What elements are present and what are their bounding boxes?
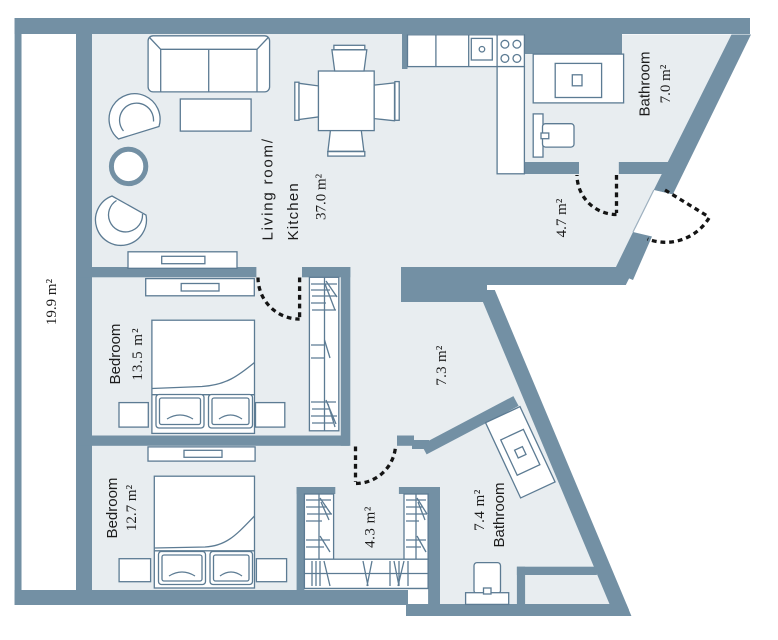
svg-text:7.4 m²: 7.4 m² — [472, 489, 488, 531]
svg-text:19.9 m²: 19.9 m² — [44, 278, 60, 325]
svg-text:37.0 m²: 37.0 m² — [314, 173, 330, 220]
svg-text:7.0 m²: 7.0 m² — [658, 64, 674, 103]
svg-text:4.7 m²: 4.7 m² — [554, 198, 570, 237]
svg-text:13.5 m²: 13.5 m² — [130, 327, 146, 380]
svg-text:Bedroom: Bedroom — [104, 478, 121, 539]
svg-text:7.3 m²: 7.3 m² — [434, 345, 450, 386]
svg-text:Kitchen: Kitchen — [285, 182, 302, 240]
svg-text:Bathroom: Bathroom — [637, 51, 654, 116]
svg-text:4.3 m²: 4.3 m² — [363, 506, 379, 548]
svg-text:Bedroom: Bedroom — [107, 324, 124, 385]
svg-text:Bathroom: Bathroom — [491, 482, 508, 547]
svg-text:12.7 m²: 12.7 m² — [124, 484, 140, 531]
svg-text:Living room/: Living room/ — [260, 137, 277, 240]
